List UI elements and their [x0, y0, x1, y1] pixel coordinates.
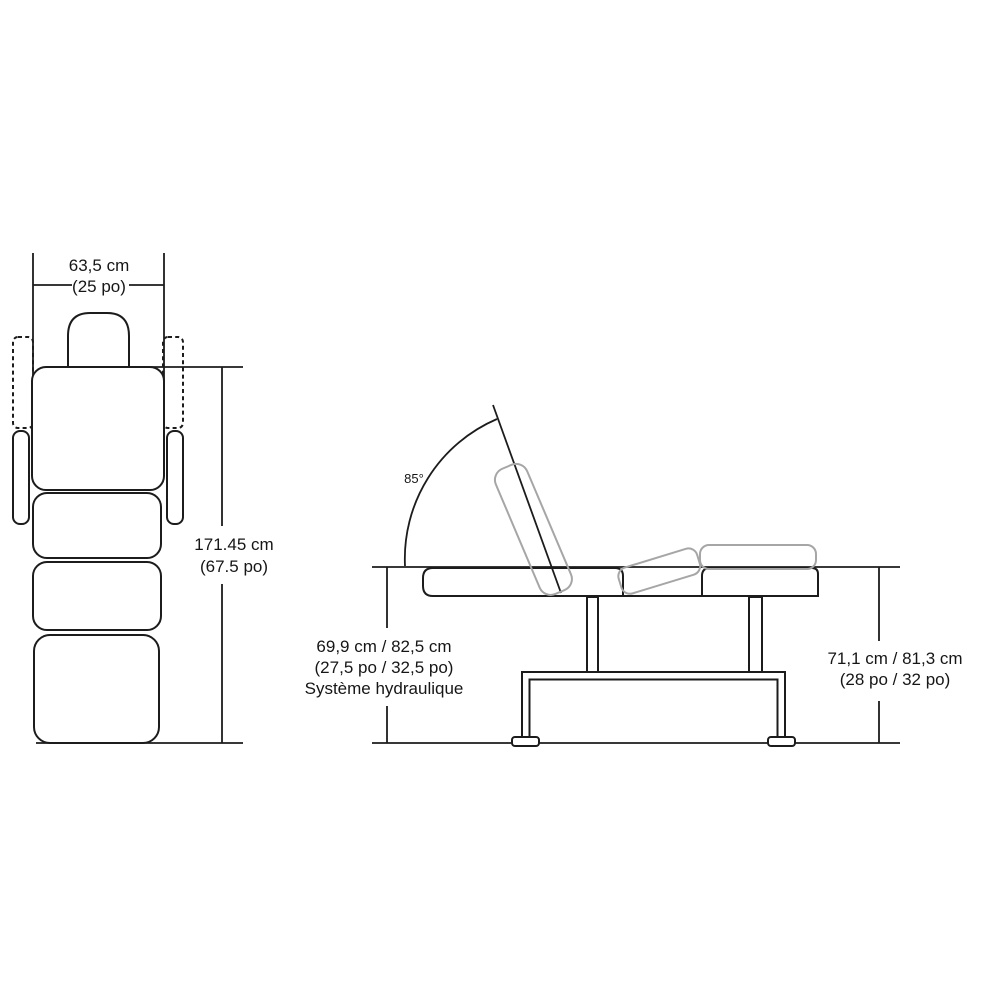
side-height-imperial: (28 po / 32 po)	[827, 669, 962, 690]
front-width-imperial: (25 po)	[69, 276, 129, 297]
backrest-angle-label: 85°	[404, 471, 424, 486]
backrest-angle-arc	[405, 419, 497, 566]
feet-pads	[512, 737, 795, 746]
cushion-sections	[32, 367, 164, 743]
front-view-drawing	[13, 253, 243, 743]
front-height-metric: 171.45 cm	[194, 534, 273, 556]
technical-drawing	[0, 0, 1000, 1000]
headrest-outline	[68, 313, 129, 368]
side-height-dimension-label: 71,1 cm / 81,3 cm (28 po / 32 po)	[827, 648, 962, 690]
front-width-dimension-label: 63,5 cm (25 po)	[69, 255, 129, 297]
front-width-metric: 63,5 cm	[69, 255, 129, 276]
side-height-metric: 71,1 cm / 81,3 cm	[827, 648, 962, 669]
backrest-angle-line	[493, 405, 561, 593]
front-height-imperial: (67.5 po)	[194, 556, 273, 578]
hydraulic-height-metric: 69,9 cm / 82,5 cm	[305, 636, 464, 657]
base-frame	[522, 672, 785, 740]
pedestal-posts	[587, 597, 762, 673]
hydraulic-height-dimension-label: 69,9 cm / 82,5 cm (27,5 po / 32,5 po) Sy…	[305, 636, 464, 699]
tabletop-left-slab	[423, 568, 623, 596]
hydraulic-height-imperial: (27,5 po / 32,5 po)	[305, 657, 464, 678]
tabletop-right-slab	[702, 568, 818, 596]
ghost-middle-tilted	[616, 546, 702, 596]
spec-diagram-page: 63,5 cm (25 po) 171.45 cm (67.5 po) 85° …	[0, 0, 1000, 1000]
hydraulic-system-caption: Système hydraulique	[305, 678, 464, 699]
ghost-foot-raised	[700, 545, 816, 569]
front-height-dimension-label: 171.45 cm (67.5 po)	[194, 534, 273, 578]
